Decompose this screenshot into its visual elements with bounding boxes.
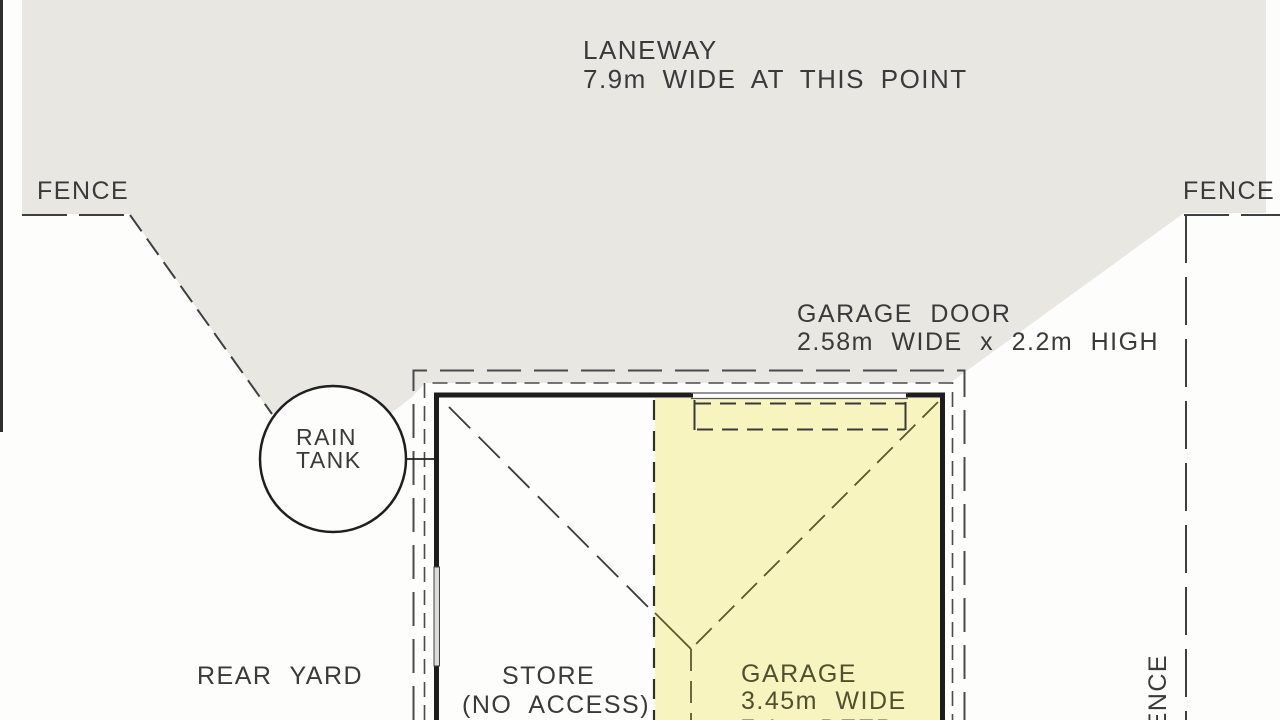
page-edge-strip — [0, 0, 3, 432]
garage-label-line1: GARAGE — [741, 660, 857, 688]
rain-tank-label-line2: TANK — [296, 447, 362, 473]
left-wall-window — [434, 567, 440, 666]
rear-yard-label: REAR YARD — [197, 662, 363, 690]
fence-left-label: FENCE — [37, 177, 129, 205]
garage-door-dimensions: 2.58m WIDE x 2.2m HIGH — [797, 328, 1159, 356]
site-plan-drawing: LANEWAY 7.9m WIDE AT THIS POINT FENCE FE… — [0, 0, 1280, 720]
store-label-line1: STORE — [502, 662, 595, 690]
garage-label-line2: 3.45m WIDE — [741, 687, 907, 715]
garage-label-line3: 7.1m DEEP — [741, 715, 894, 720]
store-label-line2: (NO ACCESS) — [462, 691, 650, 719]
laneway-title: LANEWAY — [583, 35, 718, 65]
fence-right-label: FENCE — [1183, 177, 1275, 205]
site-plan-svg: LANEWAY 7.9m WIDE AT THIS POINT FENCE FE… — [0, 0, 1280, 720]
garage-door-title: GARAGE DOOR — [797, 300, 1011, 328]
fence-right-vertical-label: FENCE — [1144, 654, 1172, 720]
laneway-width-note: 7.9m WIDE AT THIS POINT — [583, 64, 968, 94]
